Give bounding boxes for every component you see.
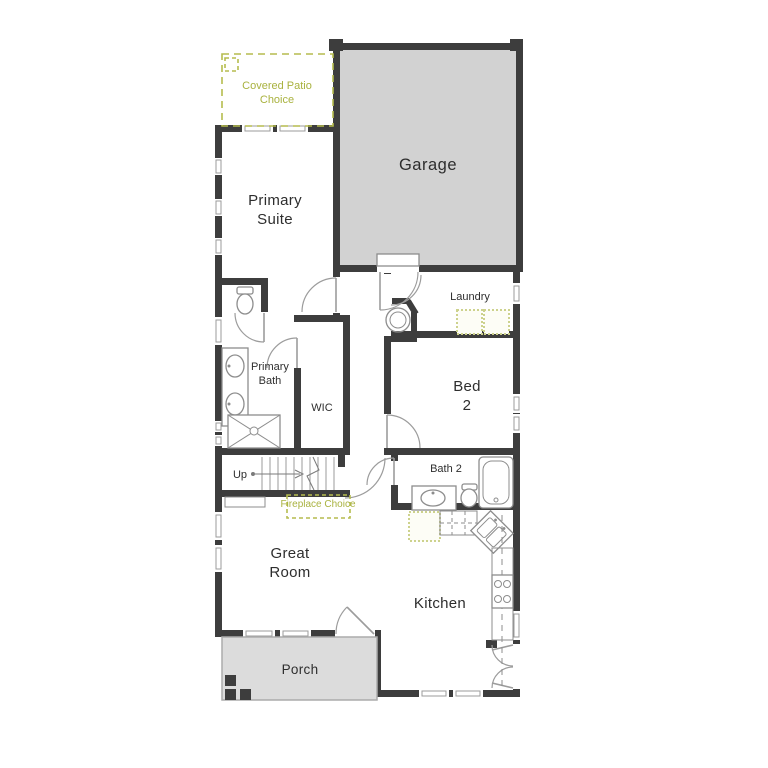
covered-patio-label: Covered Patio: [242, 80, 312, 92]
window: [214, 317, 223, 345]
window: [512, 394, 521, 413]
toilet-icon: [237, 294, 253, 314]
patio-post-outline: [225, 58, 238, 71]
floor-plan: Garage: [0, 0, 768, 768]
door-opening: [512, 644, 521, 689]
wic-label: WIC: [311, 402, 332, 414]
garage-corner-nub: [329, 39, 343, 51]
bath2-fixtures: [412, 457, 513, 510]
door-opening: [383, 274, 392, 304]
garage-step: [377, 254, 419, 266]
stair-break-line: [307, 457, 319, 490]
bed2-label: 2: [463, 397, 472, 414]
bed2-label: Bed: [453, 378, 481, 395]
door-arc: [235, 313, 264, 342]
window: [419, 689, 449, 698]
range-icon: [492, 575, 513, 608]
water-heater-icon: [390, 312, 406, 328]
garage-corner-nub: [510, 39, 523, 51]
bathtub-icon: [479, 457, 513, 508]
window: [214, 435, 223, 446]
shower-icon: [228, 415, 280, 448]
fireplace-option: Fireplace Choice: [280, 495, 355, 518]
window: [512, 414, 521, 433]
porch-post: [225, 675, 236, 686]
toilet-icon: [461, 489, 477, 507]
window: [214, 238, 223, 255]
toilet-icon: [237, 287, 253, 294]
great-room-label: Room: [269, 564, 310, 581]
window: [512, 283, 521, 304]
primary-bath-label: Primary: [251, 361, 289, 373]
dryer-space: [484, 310, 509, 334]
stair-landing: [225, 497, 265, 507]
door-arc: [367, 458, 394, 485]
primary-bath-label: Bath: [259, 375, 282, 387]
window: [453, 689, 483, 698]
garage-label: Garage: [399, 156, 457, 174]
fridge-space: [409, 512, 440, 541]
fireplace-label: Fireplace Choice: [280, 499, 355, 510]
window: [214, 199, 223, 216]
porch-label: Porch: [282, 662, 319, 677]
stair-arrow-start: [251, 472, 255, 476]
covered-patio-option: Covered Patio Choice: [222, 54, 333, 126]
porch-post: [225, 689, 236, 700]
primary-suite-label: Primary: [248, 192, 302, 209]
kitchen-label: Kitchen: [414, 595, 466, 612]
door-arc: [345, 458, 385, 498]
floor-plan-svg: Garage: [0, 0, 768, 768]
window: [214, 158, 223, 175]
laundry-label: Laundry: [450, 291, 490, 303]
great-room-label: Great: [270, 545, 310, 562]
door-arc: [302, 278, 336, 312]
window: [214, 545, 223, 572]
porch-post: [240, 689, 251, 700]
garage-room: Garage: [329, 39, 523, 272]
window: [214, 512, 223, 540]
covered-patio-label: Choice: [260, 94, 294, 106]
primary-suite-label: Suite: [257, 211, 293, 228]
bath2-label: Bath 2: [430, 463, 462, 475]
washer-dryer-area: [457, 310, 509, 334]
washer-space: [457, 310, 482, 334]
up-label: Up: [233, 469, 247, 481]
